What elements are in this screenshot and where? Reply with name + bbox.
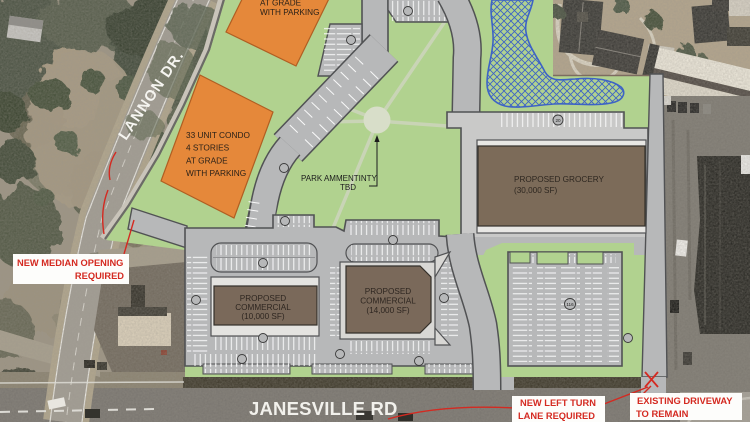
svg-text:PROPOSED: PROPOSED: [240, 294, 286, 303]
svg-text:PARK AMMENTINTY: PARK AMMENTINTY: [301, 174, 378, 183]
svg-text:(30,000 SF): (30,000 SF): [514, 186, 558, 195]
svg-text:116: 116: [566, 302, 574, 307]
svg-text:TBD: TBD: [340, 183, 356, 192]
svg-text:AT GRADE: AT GRADE: [186, 155, 228, 165]
svg-text:(14,000 SF): (14,000 SF): [366, 306, 410, 315]
svg-text:TO REMAIN: TO REMAIN: [636, 408, 689, 419]
svg-text:COMMERCIAL: COMMERCIAL: [360, 297, 416, 306]
svg-text:PROPOSED: PROPOSED: [365, 287, 411, 296]
svg-text:LANE REQUIRED: LANE REQUIRED: [518, 411, 595, 421]
svg-text:WITH PARKING: WITH PARKING: [260, 8, 319, 17]
svg-text:NEW MEDIAN OPENING: NEW MEDIAN OPENING: [17, 258, 123, 268]
svg-text:PROPOSED GROCERY: PROPOSED GROCERY: [514, 175, 604, 184]
svg-text:33 UNIT CONDO: 33 UNIT CONDO: [186, 130, 250, 140]
svg-text:COMMERCIAL: COMMERCIAL: [235, 303, 291, 312]
svg-text:WITH PARKING: WITH PARKING: [186, 168, 246, 178]
svg-text:20: 20: [555, 118, 561, 123]
svg-text:EXISTING DRIVEWAY: EXISTING DRIVEWAY: [637, 395, 733, 406]
svg-text:4 STORIES: 4 STORIES: [186, 143, 230, 153]
svg-text:NEW LEFT TURN: NEW LEFT TURN: [520, 398, 596, 408]
svg-text:REQUIRED: REQUIRED: [75, 271, 124, 281]
svg-text:(10,000 SF): (10,000 SF): [241, 312, 285, 321]
svg-text:AT GRADE: AT GRADE: [260, 0, 302, 8]
svg-text:JANESVILLE RD: JANESVILLE RD: [249, 398, 398, 419]
